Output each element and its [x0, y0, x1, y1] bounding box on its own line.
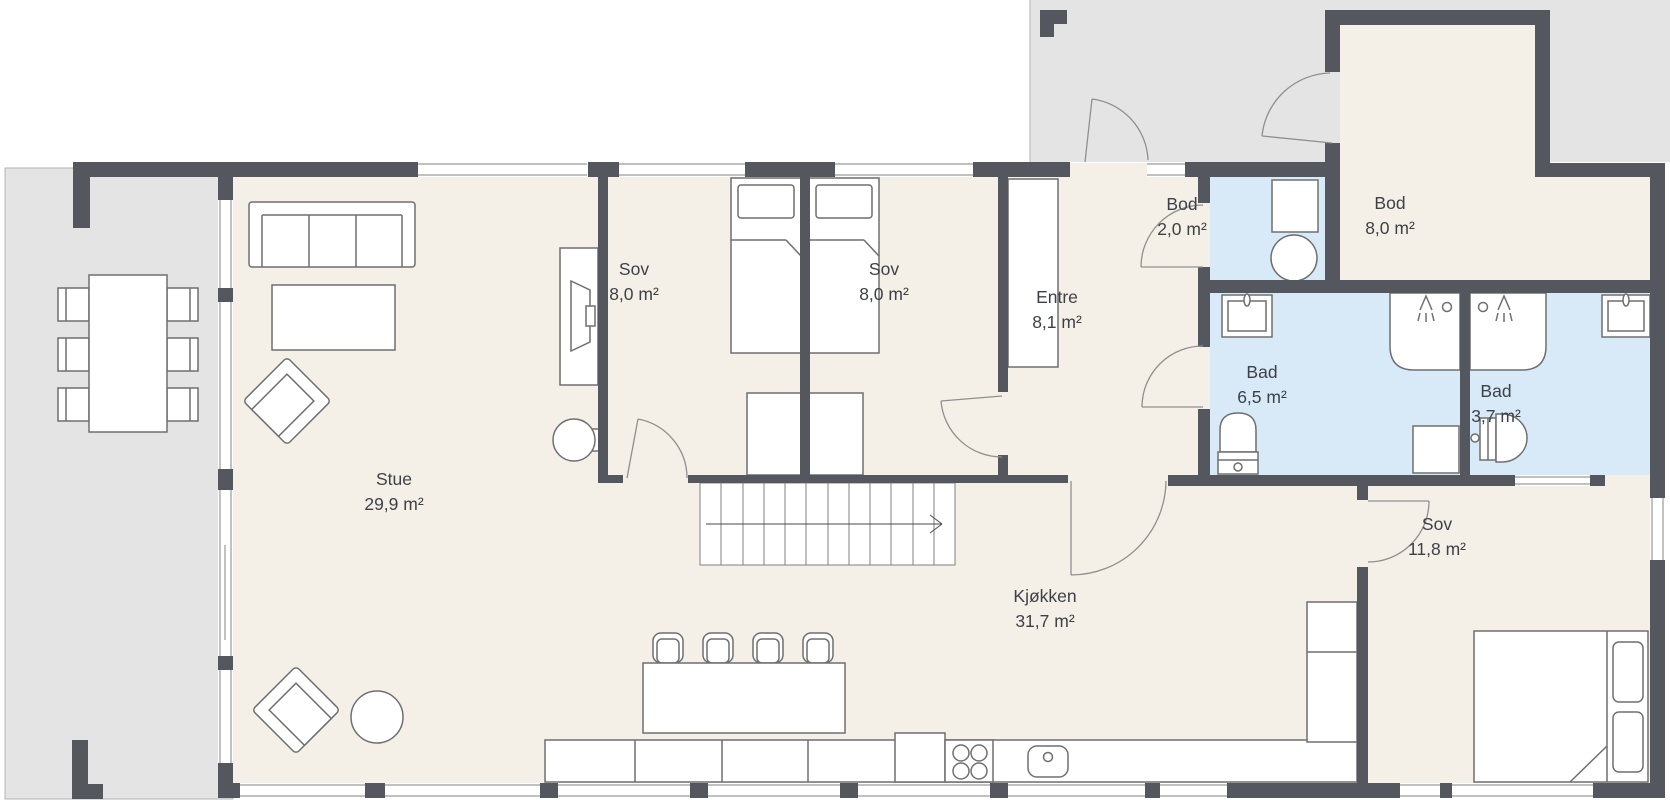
- floor-plan-drawing: [0, 0, 1670, 800]
- single-bed: [809, 178, 879, 353]
- front-door-sidelight: [1147, 162, 1185, 177]
- kitchen-sink: [1028, 746, 1068, 777]
- sliding-partition: [1515, 475, 1590, 486]
- dresser: [747, 393, 801, 475]
- terrace-area: [5, 168, 233, 799]
- bar-stool: [703, 633, 733, 663]
- side-table: [351, 691, 403, 743]
- bar-stool: [653, 633, 683, 663]
- coffee-table: [272, 285, 395, 350]
- toilet: [1218, 413, 1258, 474]
- cooktop: [945, 740, 993, 782]
- single-bed: [731, 178, 801, 353]
- dining-table: [89, 275, 167, 432]
- dining-chair: [167, 288, 198, 321]
- pillow: [1613, 712, 1643, 772]
- stairs: [700, 483, 955, 565]
- washing-machine: [1413, 426, 1459, 473]
- shower: [1470, 293, 1546, 370]
- dining-table-set: [58, 275, 198, 432]
- dining-chair: [58, 338, 89, 371]
- bar-stool: [803, 633, 833, 663]
- water-heater: [1271, 235, 1317, 281]
- wall-hung-toilet: [1471, 414, 1527, 462]
- bathroom-sink: [1222, 294, 1272, 337]
- floor-plan: Stue29,9 m² Sov8,0 m² Sov8,0 m² Entre8,1…: [0, 0, 1670, 800]
- sofa: [249, 202, 415, 267]
- dining-chair: [167, 338, 198, 371]
- tv-bench: [560, 248, 598, 385]
- dining-chair: [58, 388, 89, 421]
- bathroom-sink: [1602, 294, 1650, 337]
- double-bed: [1474, 631, 1648, 782]
- dresser: [809, 393, 863, 475]
- kitchen-island: [643, 663, 845, 733]
- bar-stool: [753, 633, 783, 663]
- fridge: [895, 733, 945, 782]
- bod8-floor: [1340, 25, 1535, 185]
- wardrobe: [1008, 179, 1058, 367]
- shower: [1390, 293, 1460, 370]
- pillow: [1613, 642, 1643, 702]
- pillow: [738, 185, 794, 218]
- pillow: [816, 185, 872, 218]
- dining-chair: [167, 388, 198, 421]
- dining-chair: [58, 288, 89, 321]
- kitchen-counter-l: [1307, 602, 1357, 742]
- washing-machine: [1272, 180, 1318, 232]
